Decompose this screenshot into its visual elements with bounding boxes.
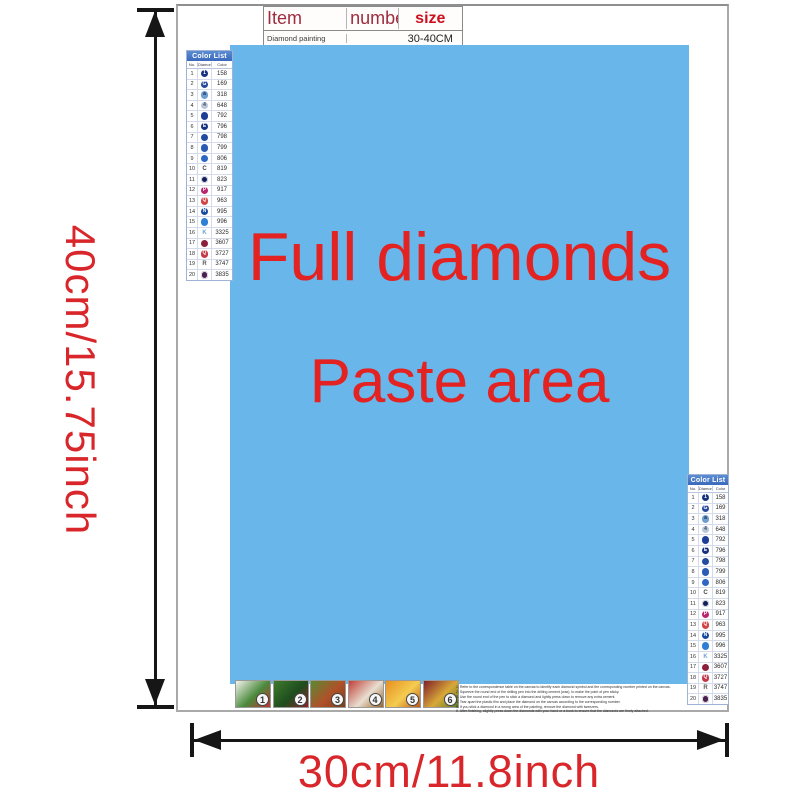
- diamond-symbol-circle-icon: [201, 176, 208, 183]
- diamond-symbol-letter-icon: R: [202, 261, 206, 267]
- color-row-number: 8: [187, 143, 198, 153]
- instruction-text: 1. Refer to the correspondence table on …: [456, 685, 704, 714]
- color-row-symbol-cell: a: [198, 90, 212, 100]
- color-list-row: 3a318: [688, 514, 728, 525]
- color-row-code: 169: [212, 81, 232, 87]
- color-row-symbol-cell: [198, 111, 212, 121]
- color-row-code: 796: [713, 548, 728, 554]
- color-row-symbol-cell: [699, 557, 713, 567]
- color-row-symbol-cell: 1: [198, 69, 212, 79]
- color-row-number: 12: [187, 186, 198, 196]
- color-row-number: 17: [187, 239, 198, 249]
- color-row-symbol-cell: 4: [198, 101, 212, 111]
- color-list-row: 3a318: [187, 90, 232, 101]
- color-row-number: 5: [688, 535, 699, 545]
- color-row-number: 9: [688, 578, 699, 588]
- color-row-symbol-cell: E: [198, 122, 212, 132]
- step-thumbnail-image: 2: [273, 680, 309, 708]
- diamond-symbol-circle-icon: [201, 144, 208, 151]
- color-row-symbol-cell: Q: [198, 249, 212, 259]
- color-row-number: 18: [688, 673, 699, 683]
- color-row-number: 17: [688, 663, 699, 673]
- color-list-row: 5792: [688, 535, 728, 546]
- color-row-code: 819: [212, 166, 232, 172]
- canvas-sheet: Item number size Diamond painting 30-40C…: [176, 4, 729, 712]
- color-list-row: 7798: [688, 557, 728, 568]
- color-row-symbol-cell: C: [198, 164, 212, 174]
- color-row-code: 796: [212, 124, 232, 130]
- color-row-symbol-cell: 1: [699, 493, 713, 503]
- color-list-row: 44648: [187, 101, 232, 112]
- color-row-number: 9: [187, 154, 198, 164]
- color-list-row: 8799: [688, 567, 728, 578]
- color-row-symbol-cell: [198, 217, 212, 227]
- diamond-symbol-circle-icon: G: [702, 505, 709, 512]
- color-row-number: 6: [688, 546, 699, 556]
- spec-value-item: Diamond painting: [264, 34, 347, 43]
- color-list-row: 10C819: [688, 588, 728, 599]
- color-row-code: 3325: [713, 654, 728, 660]
- step-thumbnail-image: 5: [385, 680, 421, 708]
- color-list-row: 44648: [688, 525, 728, 536]
- color-row-symbol-cell: [699, 535, 713, 545]
- color-row-code: 995: [212, 209, 232, 215]
- step-number-badge: 2: [294, 693, 307, 706]
- color-row-code: 3727: [212, 251, 232, 257]
- diamond-symbol-letter-icon: K: [703, 654, 707, 660]
- diamond-symbol-circle-icon: [201, 134, 208, 141]
- width-arrowhead-left-icon: [194, 730, 221, 750]
- color-row-code: 3835: [212, 272, 232, 278]
- color-row-code: 792: [212, 113, 232, 119]
- column-code: Color: [212, 62, 232, 67]
- color-row-number: 14: [688, 631, 699, 641]
- color-list-row: 11158: [688, 493, 728, 504]
- color-row-code: 963: [713, 622, 728, 628]
- color-list-row: 11823: [688, 599, 728, 610]
- color-row-number: 8: [688, 567, 699, 577]
- diamond-symbol-circle-icon: a: [201, 91, 208, 98]
- paste-area-title-line2: Paste area: [230, 351, 689, 413]
- color-list-row: 9806: [688, 578, 728, 589]
- diamond-symbol-letter-icon: C: [703, 590, 707, 596]
- diamond-symbol-circle-icon: [702, 568, 709, 575]
- color-row-number: 2: [187, 80, 198, 90]
- color-row-symbol-cell: P: [198, 186, 212, 196]
- color-row-number: 20: [187, 270, 198, 280]
- color-row-symbol-cell: [198, 270, 212, 280]
- color-row-code: 996: [212, 219, 232, 225]
- color-row-symbol-cell: [198, 133, 212, 143]
- diamond-symbol-circle-icon: [201, 271, 208, 278]
- color-row-number: 4: [187, 101, 198, 111]
- diamond-symbol-circle-icon: [201, 218, 208, 225]
- color-row-code: 806: [713, 580, 728, 586]
- color-row-symbol-cell: P: [699, 610, 713, 620]
- spec-value-size: 30-40CM: [399, 33, 462, 45]
- color-list-row: 12P917: [688, 610, 728, 621]
- color-row-symbol-cell: 4: [699, 525, 713, 535]
- color-row-symbol-cell: [198, 154, 212, 164]
- diamond-symbol-circle-icon: 4: [702, 526, 709, 533]
- color-list-row: 7798: [187, 133, 232, 144]
- diamond-symbol-circle-icon: G: [201, 81, 208, 88]
- color-row-code: 3835: [713, 696, 728, 702]
- color-list-right: Color List No. Diamond Color 111582G1693…: [687, 474, 729, 705]
- color-list-row: 9806: [187, 154, 232, 165]
- diamond-symbol-circle-icon: 1: [201, 70, 208, 77]
- color-row-code: 792: [713, 537, 728, 543]
- color-row-symbol-cell: G: [699, 504, 713, 514]
- color-row-symbol-cell: Q: [699, 673, 713, 683]
- color-row-symbol-cell: [198, 239, 212, 249]
- step-thumbnail-image: 4: [348, 680, 384, 708]
- color-list-row: 16K3325: [187, 228, 232, 239]
- column-symbol: Diamond: [198, 62, 212, 67]
- color-row-code: 3727: [713, 675, 728, 681]
- color-row-code: 318: [713, 516, 728, 522]
- color-row-number: 11: [187, 175, 198, 185]
- color-row-symbol-cell: [699, 578, 713, 588]
- diamond-symbol-circle-icon: [201, 112, 208, 119]
- color-row-code: 158: [713, 495, 728, 501]
- color-list-title: Color List: [187, 51, 232, 61]
- color-row-number: 5: [187, 111, 198, 121]
- diamond-symbol-circle-icon: P: [201, 187, 208, 194]
- spec-header-item: Item: [264, 8, 347, 29]
- color-list-column-headers: No. Diamond Color: [688, 485, 728, 493]
- color-row-number: 18: [187, 249, 198, 259]
- spec-header-size: size: [399, 10, 462, 28]
- color-list-row: 6E796: [688, 546, 728, 557]
- color-row-code: 819: [713, 590, 728, 596]
- diamond-symbol-circle-icon: 1: [702, 494, 709, 501]
- color-row-number: 2: [688, 504, 699, 514]
- color-row-number: 15: [187, 217, 198, 227]
- color-row-code: 798: [713, 558, 728, 564]
- color-row-code: 917: [713, 611, 728, 617]
- column-code: Color: [713, 486, 728, 491]
- height-arrowhead-down-icon: [145, 679, 165, 705]
- color-row-code: 3747: [212, 261, 232, 267]
- color-list-row: 18Q3727: [688, 673, 728, 684]
- color-row-number: 19: [187, 260, 198, 270]
- spec-table-header-row: Item number size: [264, 7, 462, 31]
- spec-header-number: number: [347, 8, 398, 29]
- color-row-number: 16: [187, 228, 198, 238]
- color-row-code: 996: [713, 643, 728, 649]
- color-row-code: 995: [713, 633, 728, 639]
- color-row-symbol-cell: R: [198, 260, 212, 270]
- height-arrow-bottom-cap: [137, 705, 174, 709]
- height-arrowhead-up-icon: [145, 11, 165, 37]
- color-row-code: 169: [713, 505, 728, 511]
- color-row-symbol-cell: [699, 663, 713, 673]
- color-row-symbol-cell: Q: [699, 620, 713, 630]
- color-list-body: 111582G1693a3184464857926E79677988799980…: [688, 493, 728, 704]
- color-row-number: 13: [187, 196, 198, 206]
- width-arrowhead-right-icon: [697, 730, 724, 750]
- color-list-row: 2G169: [688, 504, 728, 515]
- diamond-symbol-circle-icon: Q: [702, 621, 709, 628]
- diamond-symbol-circle-icon: a: [702, 515, 709, 522]
- column-symbol: Diamond: [699, 486, 713, 491]
- color-row-code: 917: [212, 187, 232, 193]
- diamond-symbol-circle-icon: [702, 579, 709, 586]
- width-dimension-label: 30cm/11.8inch: [298, 746, 600, 798]
- color-row-number: 3: [187, 90, 198, 100]
- color-list-row: 15996: [688, 641, 728, 652]
- color-list-row: 11823: [187, 175, 232, 186]
- diamond-symbol-circle-icon: 4: [201, 102, 208, 109]
- color-row-code: 798: [212, 134, 232, 140]
- diamond-symbol-circle-icon: Q: [201, 250, 208, 257]
- color-list-column-headers: No. Diamond Color: [187, 61, 232, 69]
- color-row-symbol-cell: [198, 143, 212, 153]
- color-row-number: 12: [688, 610, 699, 620]
- color-row-number: 6: [187, 122, 198, 132]
- color-row-code: 3607: [713, 664, 728, 670]
- diamond-symbol-circle-icon: E: [702, 547, 709, 554]
- color-row-symbol-cell: K: [198, 228, 212, 238]
- diamond-symbol-circle-icon: [201, 155, 208, 162]
- color-row-number: 10: [688, 588, 699, 598]
- color-row-symbol-cell: G: [198, 80, 212, 90]
- spec-table-data-row: Diamond painting 30-40CM: [264, 31, 462, 46]
- color-list-row: 15996: [187, 217, 232, 228]
- diamond-symbol-letter-icon: C: [202, 166, 206, 172]
- color-row-code: 823: [212, 177, 232, 183]
- color-row-code: 318: [212, 92, 232, 98]
- column-no: No.: [187, 62, 198, 67]
- color-row-number: 13: [688, 620, 699, 630]
- color-row-symbol-cell: C: [699, 588, 713, 598]
- color-row-number: 4: [688, 525, 699, 535]
- diamond-symbol-circle-icon: [702, 536, 709, 543]
- color-row-code: 963: [212, 198, 232, 204]
- color-row-number: 16: [688, 652, 699, 662]
- diamond-symbol-circle-icon: [702, 664, 709, 671]
- diamond-symbol-circle-icon: N: [201, 208, 208, 215]
- color-row-code: 648: [212, 103, 232, 109]
- diamond-symbol-circle-icon: [201, 240, 208, 247]
- color-list-row: 14N995: [187, 207, 232, 218]
- step-thumbnail-image: 1: [235, 680, 271, 708]
- color-list-row: 8799: [187, 143, 232, 154]
- color-row-number: 11: [688, 599, 699, 609]
- color-row-number: 10: [187, 164, 198, 174]
- color-list-row: 10C819: [187, 164, 232, 175]
- step-number-badge: 1: [256, 693, 269, 706]
- step-number-badge: 5: [406, 693, 419, 706]
- color-row-symbol-cell: [699, 641, 713, 651]
- color-row-number: 15: [688, 641, 699, 651]
- color-list-left: Color List No. Diamond Color 111582G1693…: [186, 50, 233, 281]
- color-list-row: 6E796: [187, 122, 232, 133]
- color-list-row: 16K3325: [688, 652, 728, 663]
- color-row-symbol-cell: K: [699, 652, 713, 662]
- color-row-symbol-cell: [198, 175, 212, 185]
- color-row-code: 3747: [713, 685, 728, 691]
- color-row-symbol-cell: [699, 567, 713, 577]
- color-row-number: 14: [187, 207, 198, 217]
- color-row-code: 3607: [212, 240, 232, 246]
- step-number-badge: 6: [444, 693, 457, 706]
- paste-area: Full diamonds Paste area: [230, 45, 689, 684]
- color-row-code: 799: [212, 145, 232, 151]
- color-row-code: 799: [713, 569, 728, 575]
- width-arrow-right-cap: [725, 723, 729, 757]
- color-row-symbol-cell: N: [699, 631, 713, 641]
- color-list-row: 12P917: [187, 186, 232, 197]
- color-row-number: 1: [688, 493, 699, 503]
- color-list-row: 13Q963: [688, 620, 728, 631]
- diamond-symbol-letter-icon: K: [202, 230, 206, 236]
- color-list-row: 18Q3727: [187, 249, 232, 260]
- color-row-symbol-cell: E: [699, 546, 713, 556]
- color-list-row: 13Q963: [187, 196, 232, 207]
- color-row-number: 3: [688, 514, 699, 524]
- diamond-symbol-circle-icon: [702, 558, 709, 565]
- diamond-symbol-circle-icon: Q: [702, 674, 709, 681]
- color-row-code: 806: [212, 156, 232, 162]
- spec-table: Item number size Diamond painting 30-40C…: [263, 6, 463, 47]
- color-list-row: 2G169: [187, 80, 232, 91]
- step-thumbnails: 123456: [235, 680, 459, 709]
- color-list-title: Color List: [688, 475, 728, 485]
- color-list-row: 14N995: [688, 631, 728, 642]
- color-list-row: 5792: [187, 111, 232, 122]
- color-row-code: 158: [212, 71, 232, 77]
- paste-area-title-line1: Full diamonds: [230, 223, 689, 291]
- color-list-row: 173607: [688, 663, 728, 674]
- instruction-line: 6. After finishing, slightly press down …: [456, 709, 704, 714]
- width-arrow-line: [192, 739, 726, 742]
- step-number-badge: 3: [331, 693, 344, 706]
- color-row-number: 1: [187, 69, 198, 79]
- column-no: No.: [688, 486, 699, 491]
- step-thumbnail-image: 3: [310, 680, 346, 708]
- height-arrow-line: [154, 10, 157, 708]
- color-list-row: 203835: [187, 270, 232, 280]
- color-list-row: 19R3747: [187, 260, 232, 271]
- color-list-body: 111582G1693a3184464857926E79677988799980…: [187, 69, 232, 280]
- diamond-symbol-circle-icon: N: [702, 632, 709, 639]
- height-dimension-label: 40cm/15.75inch: [56, 225, 104, 536]
- color-row-symbol-cell: a: [699, 514, 713, 524]
- color-row-number: 7: [187, 133, 198, 143]
- diamond-symbol-circle-icon: [702, 642, 709, 649]
- diamond-symbol-circle-icon: P: [702, 611, 709, 618]
- diamond-symbol-circle-icon: [702, 600, 709, 607]
- diamond-symbol-circle-icon: E: [201, 123, 208, 130]
- color-row-code: 3325: [212, 230, 232, 236]
- color-row-symbol-cell: N: [198, 207, 212, 217]
- color-row-symbol-cell: Q: [198, 196, 212, 206]
- color-list-row: 173607: [187, 239, 232, 250]
- color-list-row: 11158: [187, 69, 232, 80]
- color-row-code: 823: [713, 601, 728, 607]
- color-row-code: 648: [713, 527, 728, 533]
- color-row-symbol-cell: [699, 599, 713, 609]
- step-thumbnail-image: 6: [423, 680, 459, 708]
- diamond-symbol-circle-icon: Q: [201, 197, 208, 204]
- step-number-badge: 4: [369, 693, 382, 706]
- color-row-number: 7: [688, 557, 699, 567]
